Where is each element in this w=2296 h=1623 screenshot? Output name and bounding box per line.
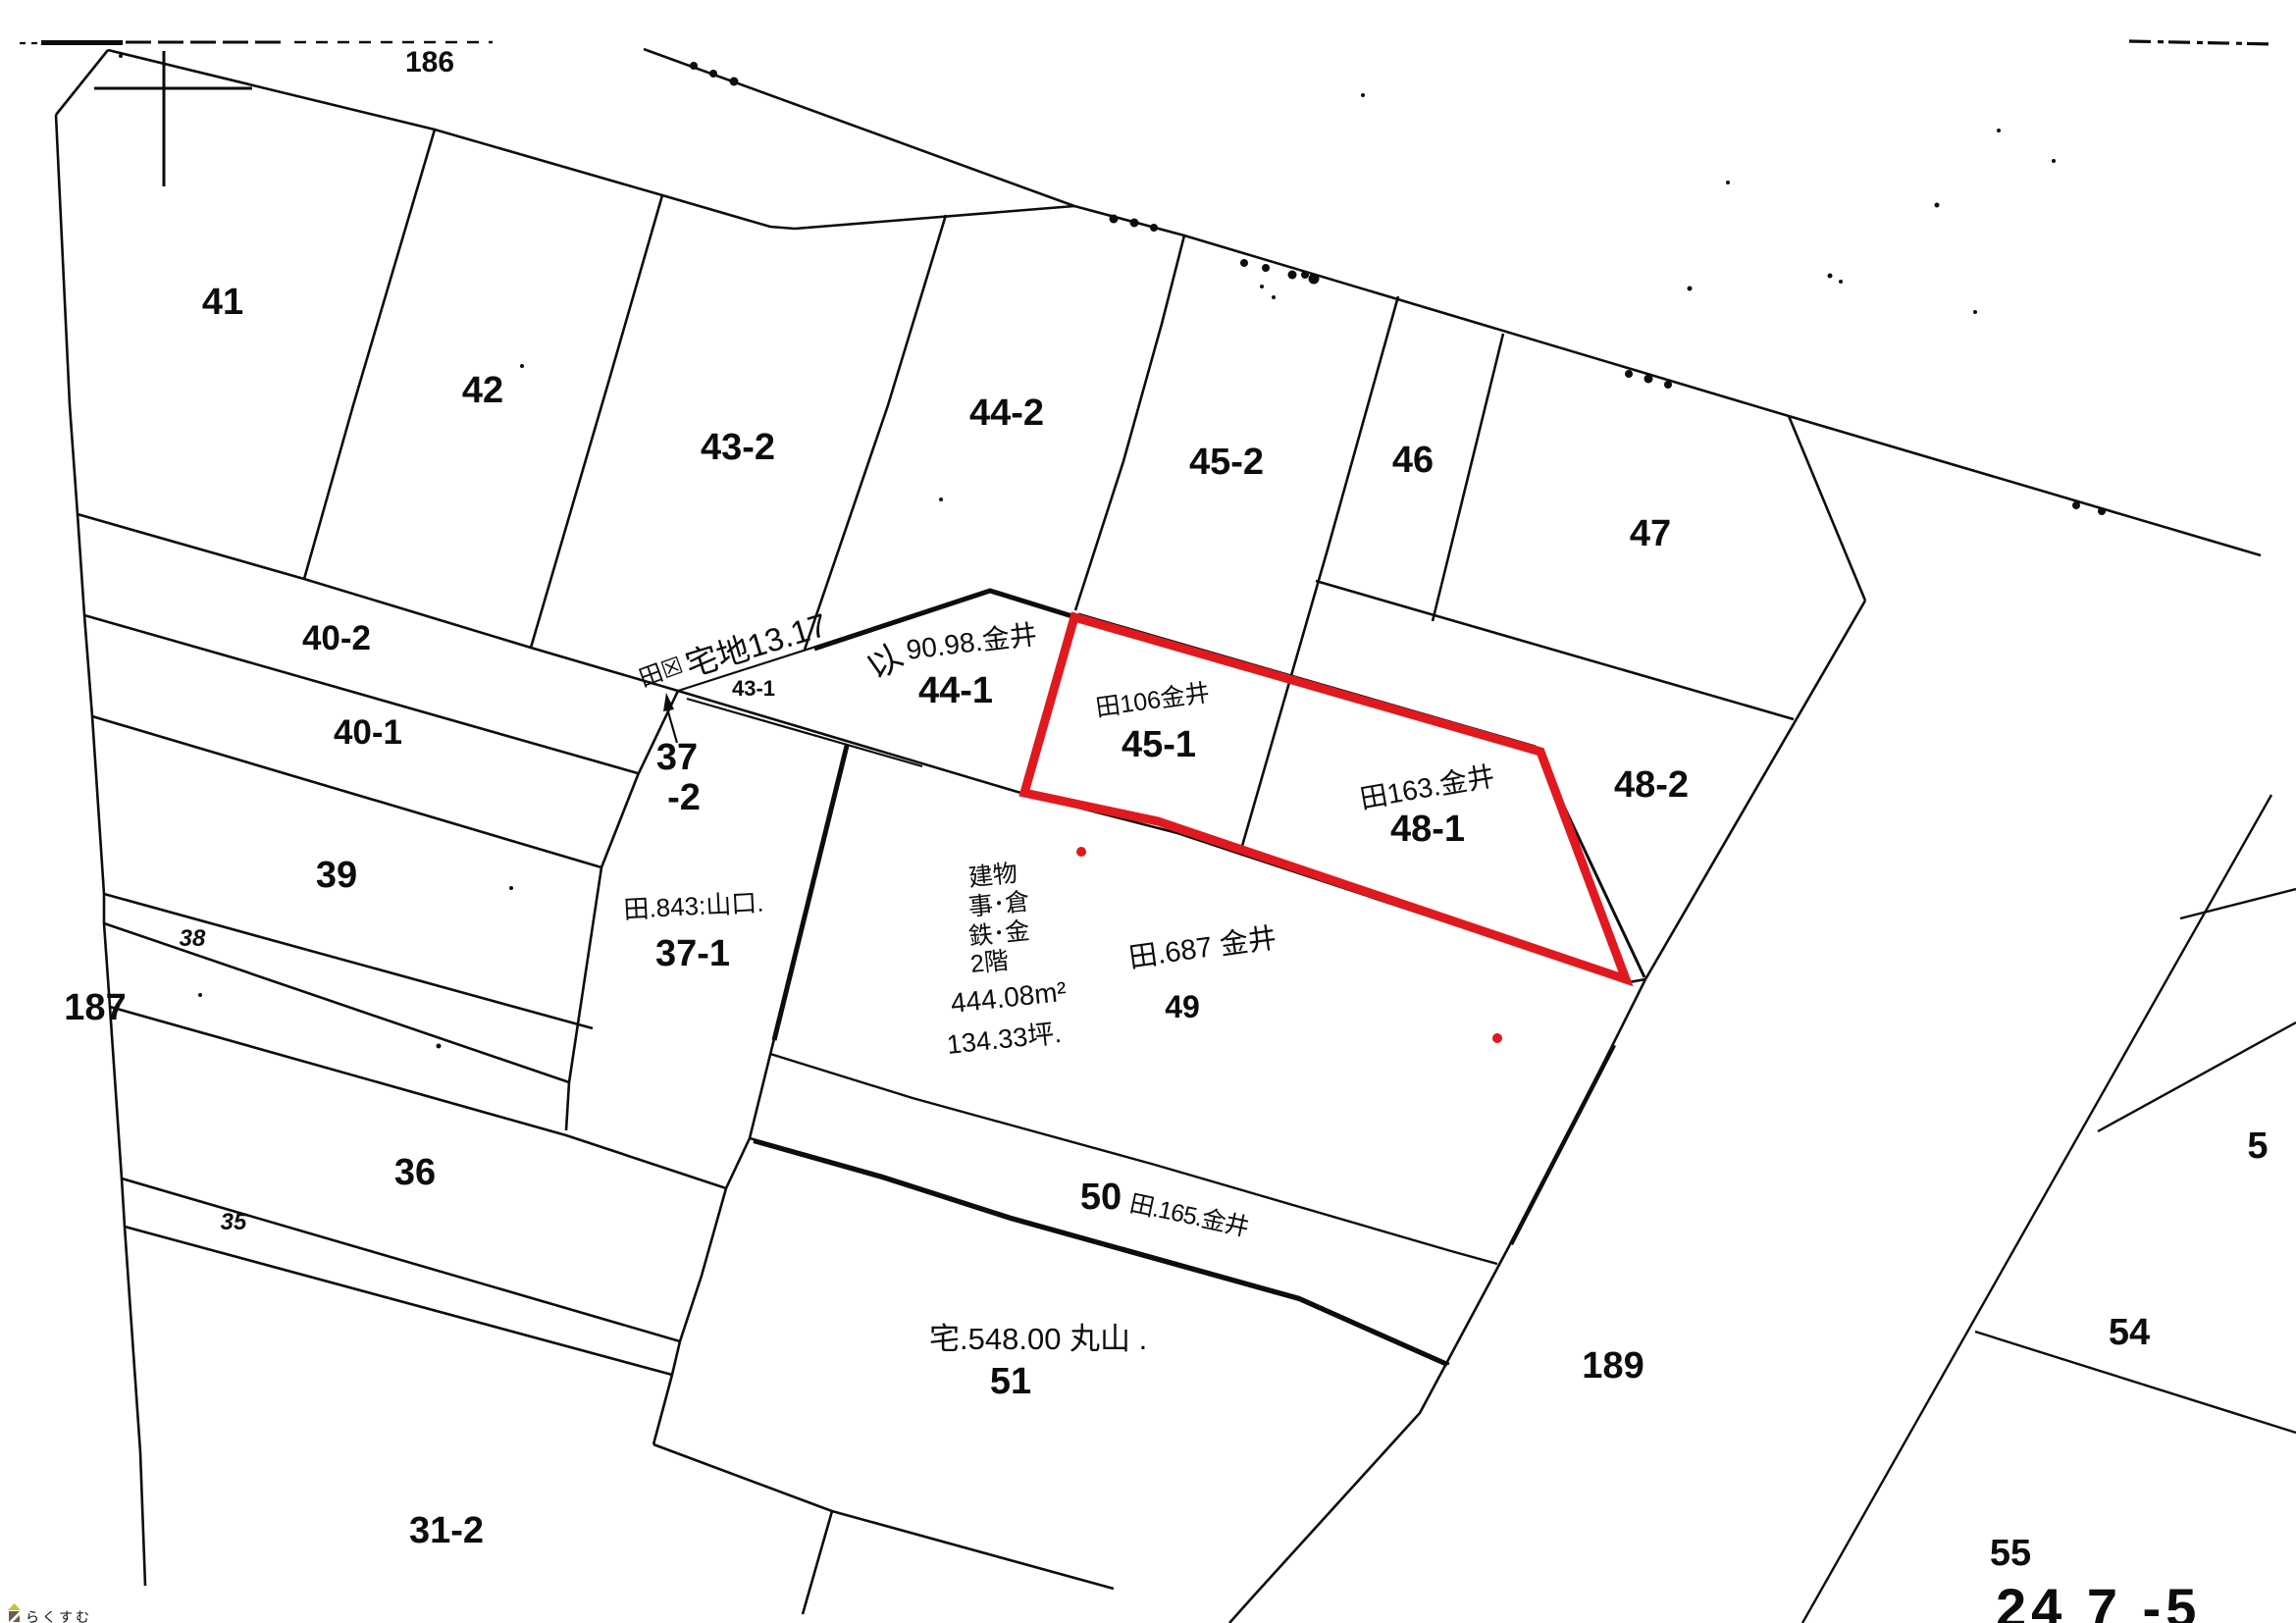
svg-text:55: 55 bbox=[1990, 1533, 2031, 1574]
svg-text:50: 50 bbox=[1080, 1177, 1122, 1218]
svg-text:建物: 建物 bbox=[967, 860, 1019, 892]
svg-text:46: 46 bbox=[1392, 440, 1434, 481]
svg-text:38: 38 bbox=[180, 925, 206, 952]
svg-text:40-2: 40-2 bbox=[302, 619, 371, 657]
svg-text:48-2: 48-2 bbox=[1614, 764, 1689, 806]
svg-text:-2: -2 bbox=[667, 777, 701, 818]
svg-text:186: 186 bbox=[405, 46, 454, 79]
svg-text:5: 5 bbox=[2247, 1126, 2268, 1167]
svg-text:41: 41 bbox=[202, 282, 243, 323]
svg-text:49: 49 bbox=[1165, 989, 1200, 1024]
svg-text:42: 42 bbox=[462, 370, 503, 411]
svg-text:187: 187 bbox=[64, 987, 126, 1028]
svg-text:44-2: 44-2 bbox=[969, 393, 1044, 434]
svg-text:39: 39 bbox=[316, 855, 357, 896]
svg-text:54: 54 bbox=[2109, 1312, 2150, 1353]
svg-text:40-1: 40-1 bbox=[334, 713, 402, 752]
svg-text:44-1: 44-1 bbox=[918, 670, 993, 711]
svg-text:37-1: 37-1 bbox=[655, 933, 730, 974]
svg-text:45-2: 45-2 bbox=[1189, 442, 1264, 483]
svg-text:らくすむ: らくすむ bbox=[26, 1609, 92, 1623]
svg-text:36: 36 bbox=[394, 1152, 436, 1193]
svg-text:43-1: 43-1 bbox=[732, 676, 775, 701]
svg-text:43-2: 43-2 bbox=[701, 427, 775, 468]
svg-text:51: 51 bbox=[990, 1361, 1031, 1402]
svg-text:37: 37 bbox=[656, 737, 698, 778]
svg-text:31-2: 31-2 bbox=[409, 1510, 484, 1551]
svg-text:189: 189 bbox=[1582, 1345, 1644, 1387]
svg-text:45-1: 45-1 bbox=[1122, 724, 1196, 765]
svg-text:35: 35 bbox=[221, 1209, 247, 1235]
svg-text:24 7 -5: 24 7 -5 bbox=[1996, 1577, 2201, 1623]
svg-text:47: 47 bbox=[1630, 513, 1671, 554]
svg-text:宅.548.00 丸山 .: 宅.548.00 丸山 . bbox=[929, 1322, 1147, 1356]
svg-text:2階: 2階 bbox=[969, 947, 1011, 978]
svg-text:48-1: 48-1 bbox=[1390, 809, 1465, 850]
